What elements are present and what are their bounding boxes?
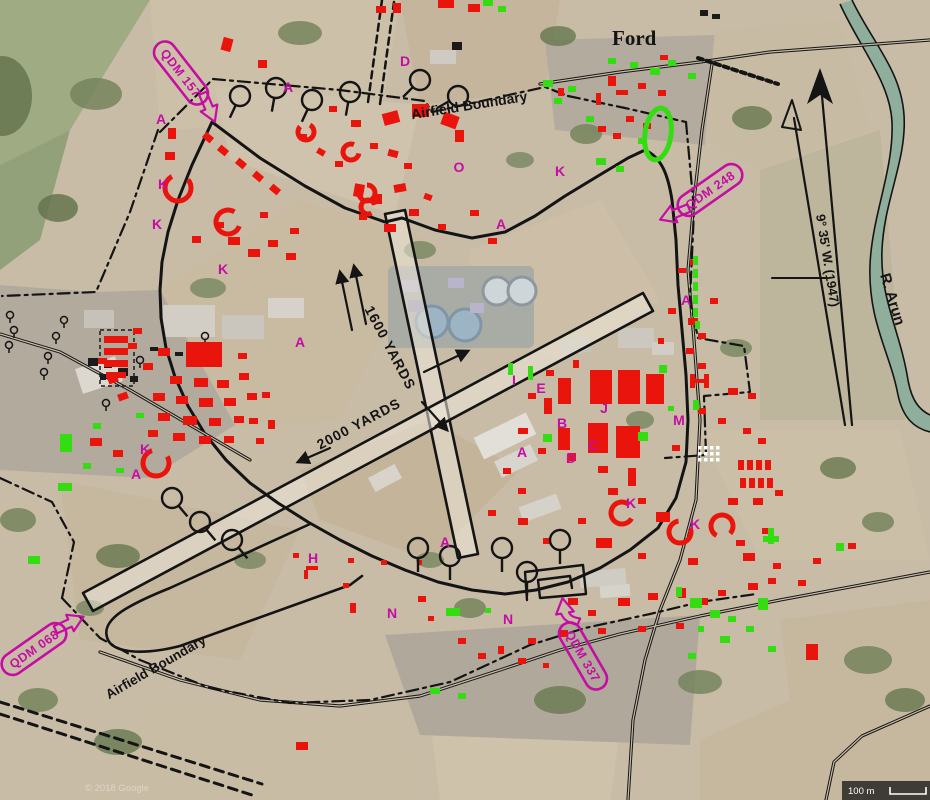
green-building bbox=[693, 295, 698, 304]
red-building bbox=[113, 450, 123, 457]
red-building bbox=[249, 418, 258, 424]
red-building bbox=[718, 590, 726, 596]
red-building bbox=[598, 126, 606, 132]
site-letter-j: J bbox=[600, 400, 608, 416]
red-building bbox=[698, 333, 706, 339]
site-letter-b: B bbox=[557, 415, 567, 431]
red-building bbox=[176, 396, 188, 404]
red-building bbox=[438, 224, 446, 230]
red-building bbox=[753, 498, 763, 505]
green-building bbox=[528, 366, 533, 380]
red-building bbox=[335, 161, 343, 167]
red-building bbox=[438, 0, 454, 8]
red-building bbox=[768, 578, 776, 584]
red-building bbox=[596, 93, 601, 105]
red-building bbox=[743, 428, 751, 434]
photo-building bbox=[222, 315, 264, 339]
site-letter-k: K bbox=[626, 495, 636, 511]
red-building bbox=[106, 372, 126, 378]
red-building bbox=[596, 538, 612, 548]
grid-square bbox=[704, 446, 708, 450]
photo-building bbox=[430, 50, 456, 64]
red-building bbox=[638, 553, 646, 559]
grid-square bbox=[698, 458, 702, 462]
red-building bbox=[348, 558, 354, 563]
green-building bbox=[768, 528, 774, 544]
red-building bbox=[798, 580, 806, 586]
green-building bbox=[28, 556, 40, 564]
imagery-credit: © 2018 Google bbox=[85, 783, 149, 794]
site-letter-i: I bbox=[512, 372, 516, 388]
green-building bbox=[688, 653, 696, 659]
green-building bbox=[58, 483, 72, 491]
red-building bbox=[528, 638, 536, 644]
green-building bbox=[693, 308, 698, 317]
red-building bbox=[598, 466, 608, 473]
site-letter-c: C bbox=[588, 437, 598, 453]
red-building bbox=[668, 308, 676, 314]
red-building bbox=[736, 540, 745, 546]
red-building bbox=[234, 416, 244, 423]
green-building bbox=[543, 80, 553, 87]
red-building bbox=[813, 558, 821, 564]
red-building bbox=[153, 393, 165, 401]
green-building bbox=[698, 626, 704, 632]
red-building bbox=[192, 236, 201, 243]
green-building bbox=[693, 256, 698, 265]
green-building bbox=[690, 598, 702, 608]
red-building bbox=[743, 553, 755, 561]
green-building bbox=[630, 62, 638, 68]
red-building bbox=[558, 378, 571, 404]
grid-square bbox=[710, 452, 714, 456]
red-building bbox=[748, 583, 758, 590]
green-building bbox=[693, 400, 699, 410]
red-building bbox=[381, 560, 387, 565]
red-building bbox=[738, 460, 744, 470]
red-building bbox=[133, 328, 142, 334]
red-building bbox=[343, 583, 349, 588]
red-building bbox=[806, 644, 818, 660]
red-building bbox=[686, 348, 694, 354]
green-building bbox=[688, 73, 696, 79]
red-building bbox=[740, 478, 746, 488]
red-building bbox=[544, 398, 552, 414]
red-building bbox=[546, 370, 554, 376]
red-building bbox=[568, 598, 578, 605]
site-letter-d: D bbox=[566, 450, 576, 466]
green-building bbox=[93, 423, 101, 429]
red-building bbox=[409, 209, 419, 216]
red-building bbox=[286, 253, 296, 260]
red-building bbox=[628, 468, 636, 486]
red-building bbox=[658, 90, 666, 96]
red-building bbox=[148, 430, 158, 437]
red-building bbox=[518, 658, 526, 664]
red-building bbox=[306, 566, 318, 570]
red-building bbox=[775, 490, 783, 496]
site-letter-o: O bbox=[454, 159, 465, 175]
site-letter-a: A bbox=[131, 466, 141, 482]
green-building bbox=[768, 646, 776, 652]
red-building bbox=[393, 3, 401, 13]
red-building bbox=[488, 238, 497, 244]
red-building bbox=[648, 593, 658, 600]
red-building bbox=[247, 393, 257, 400]
green-building bbox=[430, 688, 440, 694]
red-building bbox=[638, 498, 646, 504]
red-building bbox=[168, 128, 176, 139]
red-building bbox=[90, 438, 102, 446]
red-building bbox=[543, 663, 549, 668]
red-building bbox=[618, 370, 640, 404]
red-building bbox=[239, 373, 249, 380]
red-building bbox=[590, 370, 612, 404]
site-letter-m: M bbox=[673, 412, 685, 428]
site-letter-a: A bbox=[517, 444, 527, 460]
red-building bbox=[503, 468, 511, 474]
grid-square bbox=[716, 446, 720, 450]
site-letter-n: N bbox=[503, 611, 513, 627]
site-letter-a: A bbox=[440, 534, 450, 550]
red-building bbox=[698, 363, 706, 369]
red-building bbox=[217, 380, 229, 388]
scale-bar: 100 m bbox=[842, 781, 930, 800]
green-building bbox=[608, 58, 616, 64]
red-building bbox=[660, 55, 668, 60]
green-building bbox=[596, 158, 606, 165]
red-building bbox=[351, 120, 361, 127]
red-building bbox=[488, 510, 496, 516]
green-building bbox=[446, 608, 460, 616]
red-building bbox=[224, 398, 236, 406]
red-building bbox=[588, 610, 596, 616]
red-building bbox=[262, 392, 270, 398]
photo-building bbox=[618, 328, 654, 348]
red-building bbox=[608, 488, 618, 495]
red-building bbox=[455, 130, 464, 142]
site-letter-k: K bbox=[555, 163, 565, 179]
red-building bbox=[293, 553, 299, 558]
photo-building bbox=[84, 310, 114, 328]
red-building bbox=[199, 398, 213, 407]
red-building bbox=[498, 646, 504, 654]
red-building bbox=[518, 488, 526, 494]
green-building bbox=[668, 60, 676, 66]
red-building bbox=[618, 598, 630, 606]
site-letter-n: N bbox=[387, 605, 397, 621]
grid-square bbox=[704, 458, 708, 462]
green-building bbox=[758, 598, 768, 610]
grid-square bbox=[698, 452, 702, 456]
green-building bbox=[695, 321, 700, 329]
green-building bbox=[116, 468, 124, 473]
red-building bbox=[710, 298, 718, 304]
green-building bbox=[693, 282, 698, 291]
red-building bbox=[678, 268, 686, 273]
red-building bbox=[256, 438, 264, 444]
red-building bbox=[376, 6, 386, 13]
red-building bbox=[238, 353, 247, 359]
green-building bbox=[693, 269, 698, 278]
red-building bbox=[104, 336, 128, 343]
green-building bbox=[498, 6, 506, 12]
red-building bbox=[370, 143, 378, 149]
red-building bbox=[173, 433, 185, 441]
red-building bbox=[518, 518, 528, 525]
green-building bbox=[668, 406, 674, 411]
red-building bbox=[758, 478, 764, 488]
site-letter-d: D bbox=[400, 53, 410, 69]
red-building bbox=[698, 408, 706, 414]
red-building bbox=[248, 249, 260, 257]
red-building bbox=[170, 376, 182, 384]
site-letter-k: K bbox=[158, 176, 168, 192]
red-building bbox=[616, 90, 628, 95]
red-building bbox=[384, 224, 396, 232]
photo-building bbox=[268, 298, 304, 318]
red-building bbox=[626, 116, 634, 122]
site-letter-a: A bbox=[283, 79, 293, 95]
red-building bbox=[296, 742, 308, 750]
red-building bbox=[558, 428, 570, 450]
red-building bbox=[598, 628, 606, 634]
red-building bbox=[748, 393, 756, 399]
green-building bbox=[554, 98, 562, 104]
green-building bbox=[728, 616, 736, 622]
red-building bbox=[613, 133, 621, 139]
grid-square bbox=[704, 452, 708, 456]
red-building bbox=[616, 426, 640, 458]
green-building bbox=[60, 434, 72, 452]
red-building bbox=[608, 76, 616, 86]
red-building bbox=[104, 348, 128, 355]
red-building bbox=[728, 498, 738, 505]
site-letter-a: A bbox=[681, 292, 691, 308]
red-building bbox=[104, 360, 128, 367]
red-building bbox=[224, 436, 234, 443]
red-building bbox=[758, 438, 766, 444]
red-building bbox=[165, 152, 175, 160]
site-letter-a: A bbox=[156, 111, 166, 127]
red-building bbox=[658, 338, 664, 344]
site-letter-a: A bbox=[496, 216, 506, 232]
red-building bbox=[258, 60, 267, 68]
red-building bbox=[290, 228, 299, 234]
green-building bbox=[836, 543, 844, 551]
green-building bbox=[586, 116, 594, 122]
red-building bbox=[765, 460, 771, 470]
red-building bbox=[704, 374, 709, 388]
grid-square bbox=[716, 452, 720, 456]
green-building bbox=[568, 86, 576, 92]
red-building bbox=[304, 570, 308, 579]
red-building bbox=[538, 448, 546, 454]
red-building bbox=[260, 212, 268, 218]
red-building bbox=[767, 478, 773, 488]
scale-bar-label: 100 m bbox=[848, 786, 874, 797]
green-building bbox=[746, 626, 754, 632]
grid-square bbox=[716, 458, 720, 462]
red-building bbox=[578, 518, 586, 524]
red-building bbox=[749, 478, 755, 488]
red-building bbox=[638, 83, 646, 89]
red-building bbox=[468, 4, 480, 12]
red-building bbox=[656, 512, 670, 522]
red-building bbox=[694, 379, 704, 383]
red-building bbox=[268, 240, 278, 247]
red-building bbox=[747, 460, 753, 470]
red-building bbox=[676, 623, 684, 629]
map-canvas: Ford Airfield Boundary Airfield Boundary… bbox=[0, 0, 930, 800]
red-building bbox=[672, 445, 680, 451]
red-building bbox=[350, 603, 356, 613]
red-building bbox=[478, 653, 486, 659]
red-building bbox=[268, 420, 275, 429]
site-letter-h: H bbox=[308, 550, 318, 566]
green-building bbox=[136, 413, 144, 418]
red-building bbox=[428, 616, 434, 621]
green-building bbox=[458, 693, 466, 699]
site-letter-k: K bbox=[218, 261, 228, 277]
site-letter-k: K bbox=[140, 441, 150, 457]
place-label-ford: Ford bbox=[612, 26, 657, 50]
site-letter-k: K bbox=[690, 516, 700, 532]
grid-square bbox=[710, 446, 714, 450]
grid-square bbox=[698, 446, 702, 450]
green-building bbox=[483, 0, 493, 6]
site-letter-k: K bbox=[152, 216, 162, 232]
red-building bbox=[186, 342, 222, 367]
green-building bbox=[710, 610, 720, 618]
red-building bbox=[418, 596, 426, 602]
green-building bbox=[485, 608, 491, 613]
red-building bbox=[458, 638, 466, 644]
red-building bbox=[646, 374, 664, 404]
red-building bbox=[329, 106, 337, 112]
green-building bbox=[720, 636, 730, 643]
red-building bbox=[199, 436, 211, 444]
green-building bbox=[543, 434, 552, 442]
red-building bbox=[158, 413, 170, 421]
red-building bbox=[558, 88, 564, 96]
green-building bbox=[650, 68, 660, 75]
red-building bbox=[183, 416, 197, 425]
green-building bbox=[659, 365, 667, 373]
red-building bbox=[688, 558, 698, 565]
red-building bbox=[773, 563, 781, 569]
red-building bbox=[158, 348, 170, 356]
red-building bbox=[638, 626, 646, 632]
red-building bbox=[728, 388, 738, 395]
green-building bbox=[616, 166, 624, 172]
photo-building bbox=[163, 305, 215, 337]
green-building bbox=[676, 587, 682, 597]
red-building bbox=[209, 418, 221, 426]
red-building bbox=[404, 163, 412, 169]
red-building bbox=[194, 378, 208, 387]
green-building bbox=[83, 463, 91, 469]
red-building bbox=[228, 237, 240, 245]
site-letter-a: A bbox=[295, 334, 305, 350]
red-building bbox=[756, 460, 762, 470]
red-building bbox=[573, 360, 579, 368]
grid-square bbox=[710, 458, 714, 462]
red-building bbox=[518, 428, 528, 434]
site-letter-e: E bbox=[536, 380, 545, 396]
red-building bbox=[128, 343, 137, 349]
red-building bbox=[848, 543, 856, 549]
red-building bbox=[470, 210, 479, 216]
red-building bbox=[528, 393, 536, 399]
green-building bbox=[638, 432, 648, 441]
red-building bbox=[718, 418, 726, 424]
airfield-map: Ford Airfield Boundary Airfield Boundary… bbox=[0, 0, 930, 800]
red-building bbox=[143, 363, 153, 370]
